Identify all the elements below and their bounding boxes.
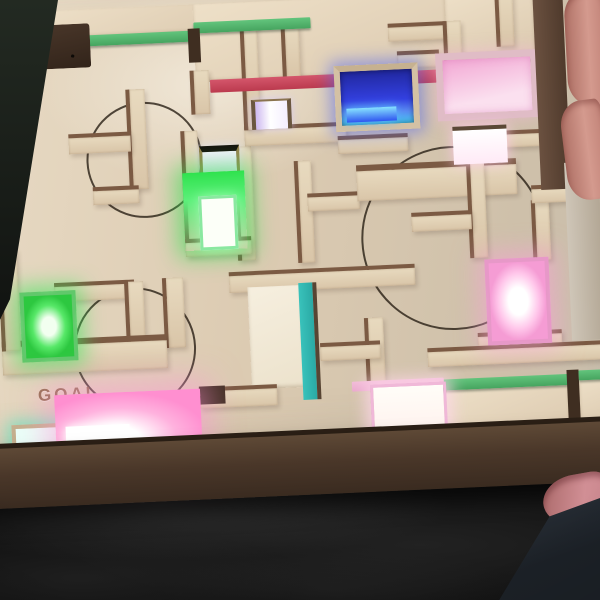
maze-wall [388,21,447,42]
maze-wall [189,70,210,115]
maze-board: GOAL [0,0,600,600]
led-white-pink-window [452,124,508,164]
maze-wall [68,132,131,155]
led-pink-right [484,257,552,346]
led-blue-bright-bar [346,106,397,122]
maze-wall [281,26,301,79]
led-blue-top [333,62,420,132]
led-green-left [19,290,78,362]
wall-gap [188,28,202,63]
green-painted-edge [578,369,600,380]
led-green-center-window [198,195,238,251]
led-green-center [182,170,247,251]
photo-scene: GOAL [0,0,600,600]
maze-wall [494,0,515,47]
maze-wall [320,340,381,361]
maze-wall [338,133,409,154]
led-pink-top-right [435,49,540,122]
maze-wall [531,200,552,261]
led-lavender-window [251,98,292,130]
maze-wall [247,285,305,389]
maze-wall [356,158,517,201]
maze-wall [307,191,360,211]
maze-wall [411,210,472,232]
maze-wall [93,185,140,205]
wall-gap [199,385,226,404]
